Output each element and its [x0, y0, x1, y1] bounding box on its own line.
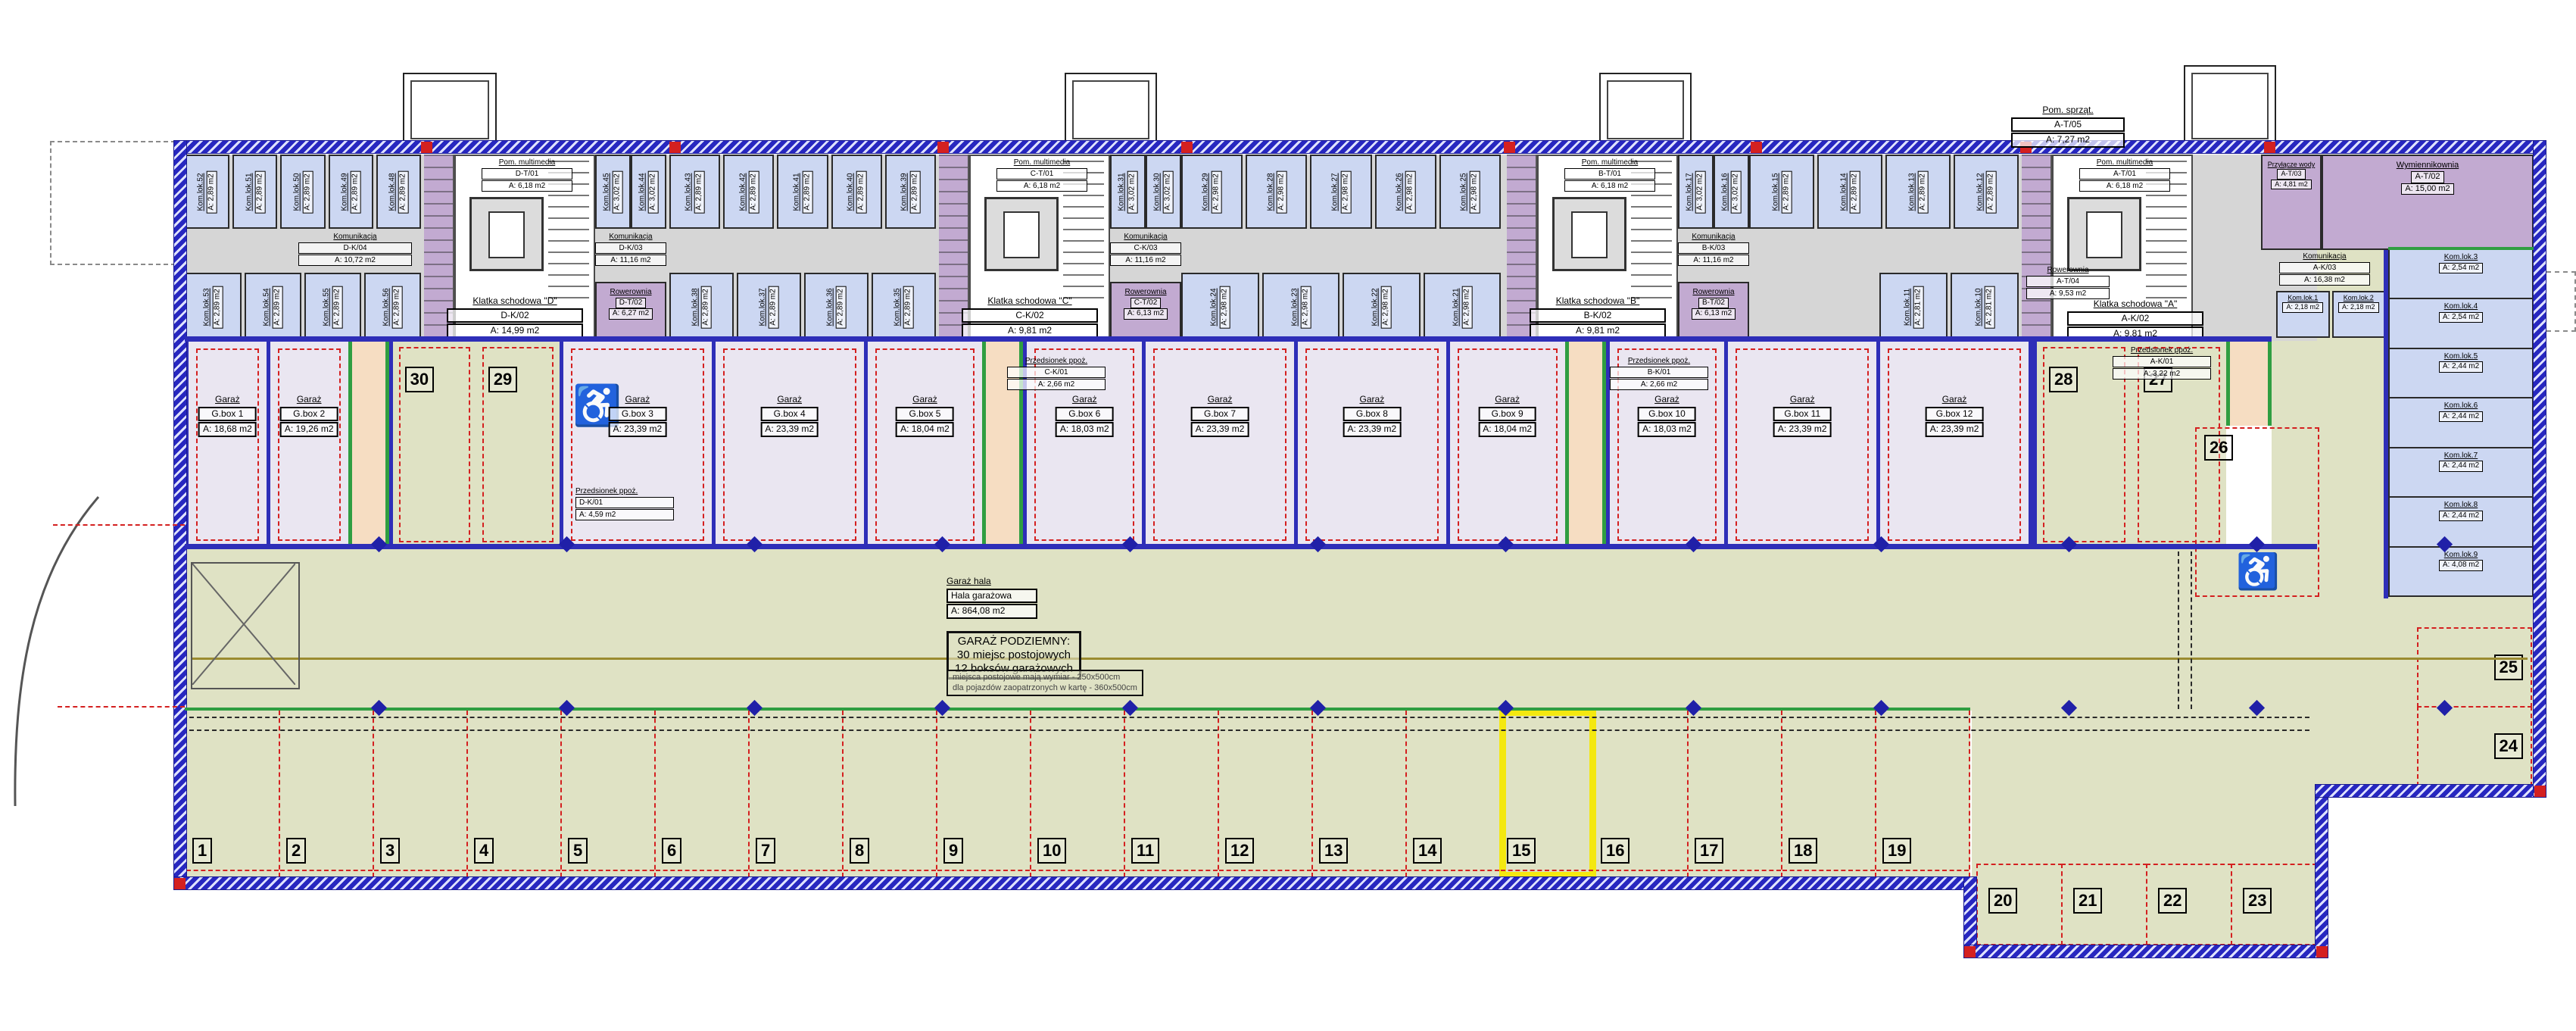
- parking-spot: 29: [476, 341, 560, 548]
- garage-box: ♿ Garaż G.box 1A: 18,68 m2: [185, 341, 267, 548]
- parking-spot: 14: [1407, 711, 1501, 877]
- parking-spot: 25: [2417, 627, 2532, 708]
- storage-cell: Kom.lok.28A: 2,98 m2: [1246, 155, 1307, 229]
- storage-cell: Kom.lok.1A: 2,18 m2: [2276, 291, 2330, 338]
- wall-joint-marker: [1181, 142, 1193, 153]
- storage-cell: Kom.lok.21A: 2,98 m2: [1424, 273, 1502, 341]
- stairwell-module-b: Pom. multimedia B-T/01 A: 6,18 m2 Klatka…: [1507, 155, 1749, 341]
- reference-outline-left: [50, 141, 176, 265]
- garage-box: ♿ Garaż G.box 4A: 23,39 m2: [712, 341, 864, 548]
- parking-spot: 18: [1782, 711, 1876, 877]
- storage-cell: Kom.lok.35A: 2,89 m2: [872, 273, 936, 341]
- parking-spot: 6: [656, 711, 750, 877]
- wall-joint-marker: [2264, 142, 2275, 153]
- parking-row-right: 2524: [2417, 629, 2532, 786]
- garage-box: ♿ Garaż G.box 7A: 23,39 m2: [1142, 341, 1294, 548]
- road-curve: [0, 492, 114, 811]
- storage-cell: Kom.lok.48A: 2,89 m2: [376, 155, 421, 229]
- wall-joint-marker: [669, 142, 681, 153]
- storage-cell: Kom.lok.23A: 2,98 m2: [1262, 273, 1340, 341]
- parking-spot: 7: [750, 711, 844, 877]
- storage-cell: Kom.lok.5A: 2,44 m2: [2388, 348, 2534, 398]
- elevator-shaft-d: [403, 73, 497, 147]
- parking-spot: 13: [1313, 711, 1407, 877]
- storage-cell: Kom.lok.43A: 2,89 m2: [669, 155, 720, 229]
- elevator: [469, 197, 544, 271]
- garage-hall-area: [185, 548, 2317, 711]
- bike-room-a-label: Rowerownia A-T/04 A: 9,53 m2: [2026, 265, 2110, 299]
- parking-spot: 22: [2146, 864, 2232, 945]
- parking-spot: 16: [1595, 711, 1689, 877]
- storage-cell: Kom.lok.51A: 2,89 m2: [232, 155, 277, 229]
- fire-vestibule-b: [1565, 341, 1606, 548]
- parking-spot: 10: [1031, 711, 1125, 877]
- parking-spot: 17: [1689, 711, 1782, 877]
- wall-joint-marker: [1504, 142, 1515, 153]
- stairwell-module-c: Pom. multimedia C-T/01 A: 6,18 m2 Klatka…: [939, 155, 1181, 341]
- elevator: [984, 197, 1059, 271]
- garage-box: ♿ Garaż G.box 8A: 23,39 m2: [1294, 341, 1446, 548]
- storage-cell: Kom.lok.2A: 2,18 m2: [2332, 291, 2386, 338]
- wall-joint-marker: [2534, 786, 2546, 797]
- fire-vestibule-b-label: Przedsionek ppoż. B-K/01 A: 2,66 m2: [1610, 356, 1708, 390]
- storage-cell: Kom.lok.49A: 2,89 m2: [329, 155, 373, 229]
- elevator: [1552, 197, 1626, 271]
- corridor-label-seg1: Komunikacja D-K/04 A: 10,72 m2: [298, 232, 412, 266]
- elevator-shaft-b: [1599, 73, 1692, 147]
- storage-cell: Kom.lok.16A: 3,02 m2: [1714, 155, 1749, 229]
- storage-cell: Kom.lok.30A: 3,02 m2: [1146, 155, 1181, 229]
- garage-box: ♿ Garaż G.box 11A: 23,39 m2: [1724, 341, 1876, 548]
- parking-spot: 20: [1976, 864, 2063, 945]
- storage-cell: Kom.lok.4A: 2,54 m2: [2388, 298, 2534, 348]
- storage-cell: Kom.lok.31A: 3,02 m2: [1110, 155, 1146, 229]
- fire-vestibule-c-label: Przedsionek ppoż. C-K/01 A: 2,66 m2: [1007, 356, 1106, 390]
- red-guide-line-upper: [53, 524, 185, 526]
- parking-spot: 15: [1501, 711, 1595, 877]
- storage-cell: Kom.lok.10A: 2,81 m2: [1951, 273, 2019, 341]
- right-column-cells: Kom.lok.3A: 2,54 m2 Kom.lok.4A: 2,54 m2 …: [2388, 250, 2534, 597]
- room-label-cleaning: Pom. sprząt. A-T/05 A: 7,27 m2: [2011, 105, 2125, 148]
- storage-cell: Kom.lok.9A: 4,08 m2: [2388, 546, 2534, 597]
- storage-cell: Kom.lok.39A: 2,89 m2: [885, 155, 936, 229]
- bike-room: Rowerownia B-T/02 A: 6,13 m2: [1678, 282, 1749, 341]
- storage-cell: Kom.lok.37A: 2,89 m2: [737, 273, 801, 341]
- storage-cell: Kom.lok.56A: 2,89 m2: [364, 273, 421, 341]
- parking-spot: 12: [1219, 711, 1313, 877]
- parking-spot: 30: [393, 341, 476, 548]
- storage-cell: Kom.lok.25A: 2,98 m2: [1439, 155, 1501, 229]
- ramp-shaft: [191, 562, 300, 689]
- storage-cell: Kom.lok.22A: 2,98 m2: [1343, 273, 1421, 341]
- wall-joint-marker: [937, 142, 949, 153]
- storage-cell: Kom.lok.15A: 2,89 m2: [1749, 155, 1814, 229]
- segment-a-cells: Kom.lok.15A: 2,89 m2 Kom.lok.14A: 2,89 m…: [1749, 155, 2019, 341]
- wall-joint-marker: [1751, 142, 1762, 153]
- fire-vestibule-d-label: Przedsionek ppoż. D-K/01 A: 4,59 m2: [575, 486, 674, 520]
- heat-exchanger-room: Wymiennikownia A-T/02 A: 15,00 m2: [2322, 155, 2534, 250]
- red-guide-line-lower: [58, 706, 185, 708]
- bike-room: Rowerownia C-T/02 A: 6,13 m2: [1110, 282, 1181, 341]
- storage-cell: Kom.lok.42A: 2,89 m2: [723, 155, 774, 229]
- storage-cell: Kom.lok.26A: 2,98 m2: [1375, 155, 1436, 229]
- hall-label: Garaż hala Hala garażowa A: 864,08 m2: [947, 576, 1037, 619]
- parking-spot: 19: [1876, 711, 1970, 877]
- fire-vestibule-d: [348, 341, 389, 548]
- storage-cell: Kom.lok.38A: 2,89 m2: [669, 273, 734, 341]
- segment-b-cells: Kom.lok.29A: 2,98 m2 Kom.lok.28A: 2,98 m…: [1181, 155, 1501, 341]
- parking-row-main: 12345678910111213141516171819: [185, 711, 1970, 877]
- parking-spot-26-accessible: 26 ♿: [2192, 424, 2322, 600]
- garage-box: ♿ Garaż G.box 2A: 19,26 m2: [267, 341, 348, 548]
- storage-cell: Kom.lok.54A: 2,89 m2: [245, 273, 301, 341]
- storage-cell: Kom.lok.40A: 2,89 m2: [831, 155, 882, 229]
- parking-dimension-notes: miejsca postojowe mają wymiar - 250x500c…: [947, 670, 1143, 696]
- parking-row-extension: 20212223: [1976, 864, 2316, 945]
- storage-cell: Kom.lok.44A: 3,02 m2: [631, 155, 666, 229]
- wall-joint-marker: [421, 142, 432, 153]
- parking-spot: 9: [937, 711, 1031, 877]
- parking-spot: 5: [562, 711, 656, 877]
- wall-joint-marker: [1964, 946, 1976, 958]
- garage-box: ♿ Garaż G.box 12A: 23,39 m2: [1876, 341, 2029, 548]
- water-connection-room: Przyłącze wody A-T/03 A: 4,81 m2: [2261, 155, 2322, 250]
- storage-cell: Kom.lok.14A: 2,89 m2: [1817, 155, 1882, 229]
- elevator-shaft-c: [1065, 73, 1157, 147]
- storage-cell: Kom.lok.8A: 2,44 m2: [2388, 496, 2534, 547]
- storage-cell: Kom.lok.55A: 2,89 m2: [304, 273, 361, 341]
- storage-cell: Kom.lok.13A: 2,89 m2: [1885, 155, 1951, 229]
- storage-cell: Kom.lok.52A: 2,89 m2: [185, 155, 229, 229]
- storage-cell: Kom.lok.11A: 2,81 m2: [1879, 273, 1948, 341]
- storage-cell: Kom.lok.6A: 2,44 m2: [2388, 397, 2534, 448]
- bike-room: Rowerownia D-T/02 A: 6,27 m2: [595, 282, 666, 341]
- parking-spot: 1: [185, 711, 280, 877]
- storage-cell: Kom.lok.29A: 2,98 m2: [1181, 155, 1243, 229]
- wall-joint-marker: [174, 878, 186, 889]
- segment-d-cells: Kom.lok.52A: 2,89 m2 Kom.lok.51A: 2,89 m…: [185, 155, 421, 341]
- elevator-shaft-a: [2184, 65, 2276, 147]
- parking-spot: 4: [468, 711, 562, 877]
- parking-spot: 11: [1125, 711, 1219, 877]
- storage-cell: Kom.lok.45A: 3,02 m2: [595, 155, 631, 229]
- corridor-a-cells: Kom.lok.1A: 2,18 m2 Kom.lok.2A: 2,18 m2: [2276, 291, 2385, 338]
- storage-cell: Kom.lok.53A: 2,89 m2: [185, 273, 242, 341]
- elevator: [2067, 197, 2141, 271]
- parking-spot: 3: [374, 711, 468, 877]
- wall-joint-marker: [2316, 946, 2328, 958]
- wheelchair-icon: ♿: [2236, 551, 2279, 592]
- upper-parking-spots-30-29: 3029: [389, 341, 560, 548]
- stairwell-module-d: Pom. multimedia D-T/01 A: 6,18 m2 Klatka…: [424, 155, 666, 341]
- parking-spot: 8: [844, 711, 937, 877]
- segment-c-cells: Kom.lok.43A: 2,89 m2 Kom.lok.42A: 2,89 m…: [669, 155, 936, 341]
- fire-vestibule-a: [2226, 341, 2272, 426]
- storage-cell: Kom.lok.27A: 2,98 m2: [1310, 155, 1371, 229]
- garage-box-row: ♿ Garaż G.box 1A: 18,68 m2 ♿ Garaż G.box…: [185, 341, 2033, 548]
- storage-cell: Kom.lok.36A: 2,89 m2: [804, 273, 869, 341]
- corridor-a-label: Komunikacja A-K/03 A: 16,38 m2: [2279, 252, 2370, 286]
- garage-box: ♿ Garaż G.box 5A: 18,04 m2: [864, 341, 983, 548]
- parking-spot: 2: [280, 711, 374, 877]
- floor-plan-underground-garage: Pom. sprząt. A-T/05 A: 7,27 m2 Kom.lok.5…: [0, 0, 2576, 1031]
- storage-cell: Kom.lok.50A: 2,89 m2: [280, 155, 325, 229]
- fire-vestibule-a-label: Przedsionek ppoż. A-K/01 A: 3,22 m2: [2113, 345, 2211, 380]
- storage-cell: Kom.lok.12A: 2,89 m2: [1954, 155, 2019, 229]
- parking-spot: 23: [2231, 864, 2317, 945]
- stair-flight: [2022, 155, 2052, 341]
- parking-spot: 24: [2417, 706, 2532, 786]
- storage-cell: Kom.lok.3A: 2,54 m2: [2388, 248, 2534, 299]
- parking-spot: 21: [2061, 864, 2147, 945]
- storage-cell: Kom.lok.41A: 2,89 m2: [777, 155, 828, 229]
- garage-box: ♿ Garaż G.box 9A: 18,04 m2: [1446, 341, 1565, 548]
- storage-cell: Kom.lok.17A: 3,02 m2: [1678, 155, 1714, 229]
- storage-cell: Kom.lok.7A: 2,44 m2: [2388, 447, 2534, 498]
- storage-cell: Kom.lok.24A: 2,98 m2: [1181, 273, 1259, 341]
